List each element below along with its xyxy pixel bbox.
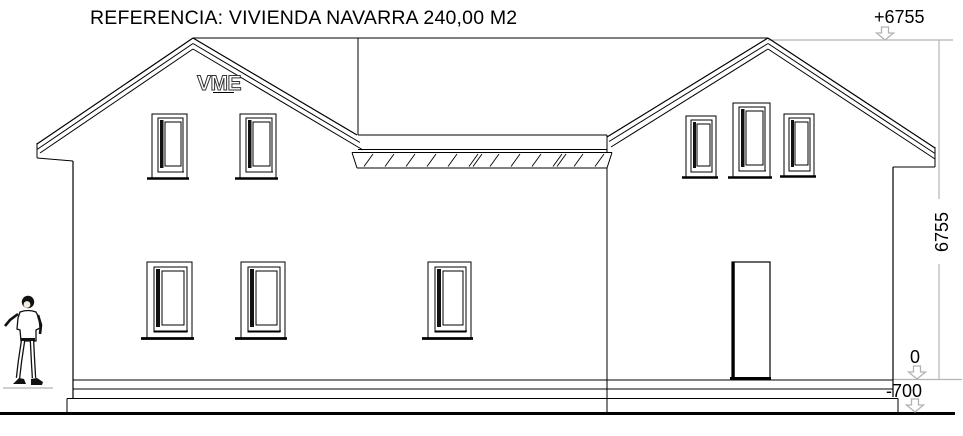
zero-level-marker: 0 <box>909 347 926 379</box>
person-left-shoe <box>13 378 26 384</box>
left-eave-soffit <box>37 158 73 161</box>
height-dimension: 6755 <box>932 199 957 264</box>
window-upper-left-2 <box>235 114 278 179</box>
foundation-level-marker: -700 <box>886 381 924 412</box>
window-ground-1 <box>141 262 194 339</box>
window-upper-left-1 <box>147 114 189 179</box>
roof-right-gable <box>607 38 935 167</box>
scale-figure-person <box>5 296 43 385</box>
roof-left-gable <box>37 38 768 161</box>
level-arrow-icon <box>909 366 926 379</box>
vme-logo: VME <box>197 72 242 95</box>
entry-door <box>730 262 771 379</box>
window-ground-3 <box>422 262 473 339</box>
house-elevation-drawing: REFERENCIA: VIVIENDA NAVARRA 240,00 M2 V… <box>0 0 963 436</box>
plinth-and-ground <box>0 380 955 414</box>
central-roof-fascia <box>358 39 607 153</box>
level-arrow-icon <box>877 27 894 40</box>
person-left-arm <box>5 314 18 326</box>
person-right-shoe <box>31 378 43 385</box>
elevation-drawing-page: REFERENCIA: VIVIENDA NAVARRA 240,00 M2 V… <box>0 0 963 436</box>
window-upper-right-1 <box>682 116 718 178</box>
window-ground-2 <box>235 262 287 339</box>
height-dimension-label: 6755 <box>932 212 952 252</box>
foundation-level-label: -700 <box>886 381 922 401</box>
drawing-title: REFERENCIA: VIVIENDA NAVARRA 240,00 M2 <box>90 7 517 29</box>
window-upper-right-3 <box>780 114 816 177</box>
gutter-hatching <box>364 154 604 167</box>
person-torso <box>17 311 40 342</box>
zero-level-label: 0 <box>910 347 920 367</box>
central-gutter <box>352 153 612 169</box>
ridge-level-label: +6755 <box>874 7 925 27</box>
ridge-level-marker: +6755 <box>874 7 925 40</box>
window-upper-right-2 <box>728 103 772 178</box>
